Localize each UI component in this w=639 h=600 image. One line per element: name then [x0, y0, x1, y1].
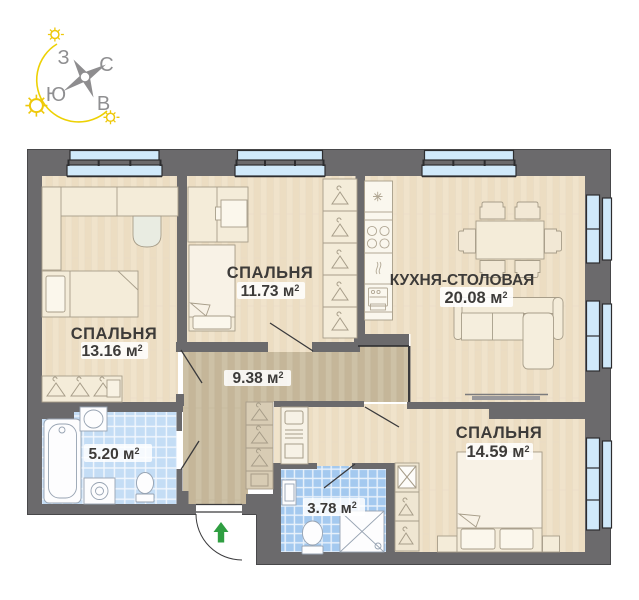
svg-text:11.73 м2: 11.73 м2 — [241, 283, 300, 300]
svg-text:3.78 м2: 3.78 м2 — [307, 500, 356, 517]
svg-text:КУХНЯ-СТОЛОВАЯ: КУХНЯ-СТОЛОВАЯ — [390, 272, 535, 289]
svg-text:9.38 м2: 9.38 м2 — [233, 370, 284, 387]
svg-text:С: С — [99, 54, 113, 76]
svg-text:14.59 м2: 14.59 м2 — [466, 443, 529, 461]
svg-text:СПАЛЬНЯ: СПАЛЬНЯ — [227, 264, 314, 282]
svg-text:СПАЛЬНЯ: СПАЛЬНЯ — [71, 325, 158, 343]
svg-text:СПАЛЬНЯ: СПАЛЬНЯ — [456, 424, 543, 442]
svg-text:13.16 м2: 13.16 м2 — [81, 343, 142, 360]
svg-text:5.20 м2: 5.20 м2 — [89, 446, 140, 463]
svg-text:В: В — [97, 93, 110, 115]
svg-text:Ю: Ю — [46, 84, 66, 106]
svg-text:З: З — [57, 47, 69, 69]
svg-text:20.08 м2: 20.08 м2 — [444, 289, 507, 307]
